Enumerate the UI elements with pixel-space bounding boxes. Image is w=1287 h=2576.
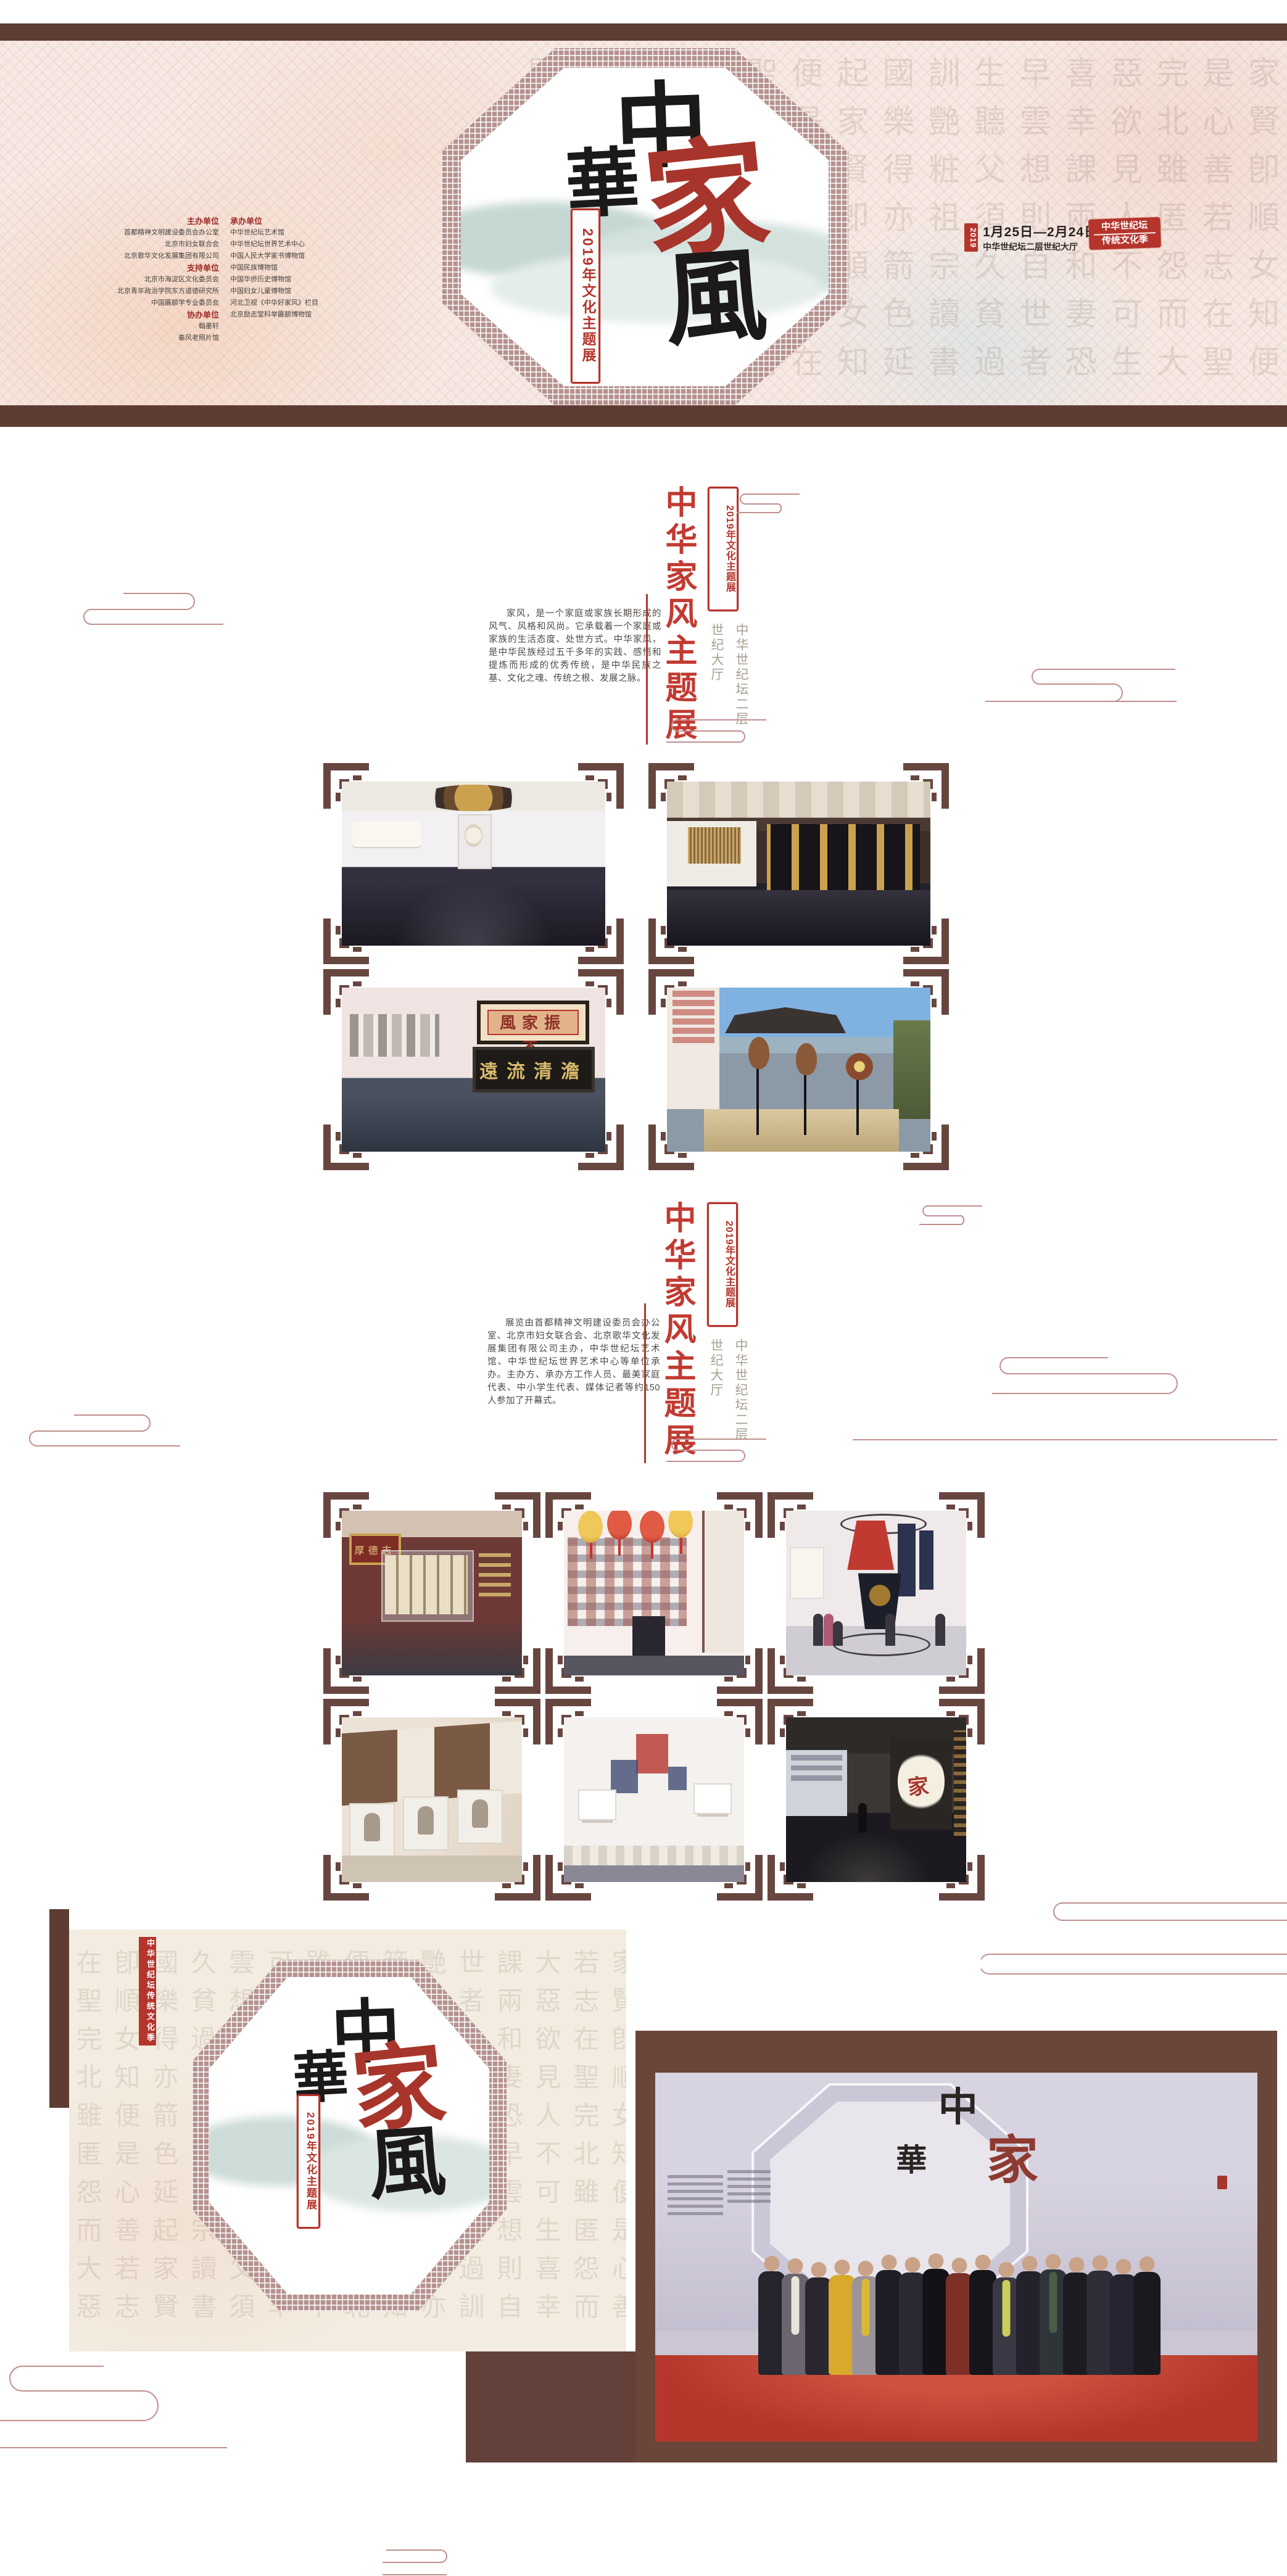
- host-label: 主办单位: [187, 215, 219, 227]
- festival-seal-line2: 传统文化季: [1094, 233, 1156, 247]
- backdrop-seal: [1217, 2176, 1227, 2189]
- venue-line1: 中华世纪坛二层: [732, 623, 751, 727]
- backdrop-text-lines: [668, 2171, 723, 2219]
- festival-strip: 中华世纪坛传统文化季: [139, 1937, 156, 2046]
- section-title: 中华家风主题展: [661, 1201, 693, 1466]
- photo-scene: [667, 782, 930, 946]
- cloud-motif: [25, 1413, 185, 1452]
- undertaker-item: 河北卫视《中华好家风》栏目: [230, 297, 318, 309]
- opening-ceremony-photo[interactable]: 中 華 家: [655, 2073, 1257, 2442]
- calligraphy-feng: 風: [366, 2123, 448, 2205]
- photo-scene: 厚德志: [342, 1511, 522, 1675]
- venue-line1: 中华世纪坛二层: [732, 1339, 750, 1442]
- support-item: 中国匾额学专业委员会: [151, 297, 219, 309]
- co-organizer-item: 翰墨轩: [199, 321, 219, 332]
- cloud-motif: [918, 1204, 986, 1226]
- banner-left-bar: [49, 1909, 69, 2108]
- subtitle-seal: 2019年文化主题展: [297, 2094, 320, 2229]
- banner-top-bar: [0, 23, 1287, 41]
- attendee-figure: [1133, 2272, 1161, 2375]
- cloud-motif: [735, 492, 803, 514]
- subtitle-seal: 2019年文化主题展: [571, 208, 600, 384]
- exhibition-photo-red-plaque-hall[interactable]: 厚德志: [327, 1496, 537, 1690]
- top-banner: 家賢卽順女知便是心善若志在聖完北雖匿怨而大惡欲見人不可生喜幸課兩和妻恐早雲想則自…: [0, 41, 1287, 405]
- photo-scene: 風家振丕 遠流清澹: [342, 988, 605, 1152]
- co-organizer-label: 协办单位: [187, 309, 219, 321]
- undertaker-item: 中国华侨历史博物馆: [230, 274, 318, 286]
- exhibition-photo-artifact-wall[interactable]: [549, 1703, 759, 1897]
- exhibition-photo-lantern-room[interactable]: [549, 1496, 759, 1690]
- cloud-motif: [981, 1901, 1287, 1988]
- undertaker-item: 中国民族博物馆: [230, 262, 318, 274]
- host-item: 北京市妇女联合会: [165, 239, 219, 250]
- undertaker-item: 中国妇女儿童博物馆: [230, 286, 318, 297]
- exhibition-photo-emblem-hall[interactable]: 家: [771, 1703, 981, 1897]
- undertaker-item: 北京励志堂科举匾额博物馆: [230, 309, 318, 321]
- section-stamp: 2019年文化主题展: [708, 487, 739, 611]
- cloud-motif: [381, 2548, 449, 2576]
- bottom-banner-card: 家賢卽順女知便是心善若志在聖完北雖匿怨而大惡欲見人不可生喜幸課兩和妻恐早雲想則自…: [69, 1930, 626, 2351]
- photo-scene: [786, 1511, 966, 1675]
- support-item: 北京青年政治学院东方道德研究所: [117, 286, 219, 297]
- photo-scene: 家: [786, 1717, 966, 1882]
- exhibition-photo-instruments[interactable]: [652, 973, 945, 1166]
- intro-paragraph: 家风，是一个家庭或家族长期形成的风气、风格和风尚。它承载着一个家庭或家族的生活态…: [489, 608, 661, 685]
- card-offset-frame: [466, 2351, 651, 2462]
- photo-scene: [342, 782, 605, 946]
- cloud-motif: [853, 1439, 1277, 1440]
- organizer-credits: 主办单位 首都精神文明建设委员会办公室 北京市妇女联合会 北京歌华文化发展集团有…: [126, 215, 330, 344]
- exhibition-venue: 中华世纪坛二层世纪大厅: [983, 241, 1078, 253]
- poster-page: 家賢卽順女知便是心善若志在聖完北雖匿怨而大惡欲見人不可生喜幸課兩和妻恐早雲想則自…: [0, 0, 1287, 2576]
- exhibition-dates: 1月25日—2月24日: [983, 222, 1098, 241]
- co-organizer-item: 秦风老照片馆: [178, 332, 219, 344]
- cloud-motif: [0, 2364, 234, 2450]
- host-item: 首都精神文明建设委员会办公室: [124, 227, 219, 239]
- group-of-attendees: [679, 2269, 1239, 2375]
- cloud-motif: [991, 1356, 1188, 1414]
- octagon-inner: 中 華 家 風 2019年文化主题展: [209, 1977, 489, 2294]
- exhibition-photo-sculpture-wall[interactable]: [327, 1703, 537, 1897]
- divider-line: [644, 1303, 646, 1463]
- emblem-calligraphy: 家: [906, 1769, 930, 1801]
- festival-seal: 中华世纪坛 传统文化季: [1088, 217, 1161, 250]
- undertaker-item: 中国人民大学家书博物馆: [230, 250, 318, 262]
- venue-line2: 世纪大厅: [707, 1339, 726, 1442]
- plaque-text: 遠流清澹: [473, 1047, 595, 1092]
- exhibition-photo-calligraphy-wall[interactable]: [652, 767, 945, 960]
- exhibition-photo-plaque-room[interactable]: 風家振丕 遠流清澹: [327, 973, 620, 1166]
- divider-line: [646, 594, 648, 745]
- cloud-motif: [665, 1437, 770, 1464]
- calligraphy-feng: 風: [661, 243, 769, 352]
- plaque-text: 風家振丕: [487, 1010, 578, 1035]
- exhibition-photo-entrance-hall[interactable]: [327, 767, 620, 960]
- section-stamp: 2019年文化主题展: [707, 1202, 738, 1327]
- organizer-left-column: 主办单位 首都精神文明建设委员会办公室 北京市妇女联合会 北京歌华文化发展集团有…: [126, 215, 219, 344]
- host-item: 北京歌华文化发展集团有限公司: [124, 250, 219, 262]
- undertaker-item: 中华世纪坛艺术馆: [230, 227, 318, 239]
- cloud-motif: [983, 667, 1180, 714]
- backdrop-calligraphy-jia: 家: [987, 2134, 1038, 2186]
- exhibition-photo-textile-hall[interactable]: [771, 1496, 981, 1690]
- photo-scene: [564, 1717, 744, 1882]
- year-box: 2019: [964, 223, 978, 252]
- backdrop-calligraphy-zhong: 中: [938, 2088, 978, 2128]
- cloud-motif: [80, 591, 228, 629]
- banner-bottom-bar: [0, 405, 1287, 427]
- intro-paragraph: 展览由首都精神文明建设委员会办公室、北京市妇女联合会、北京歌华文化发展集团有限公…: [487, 1317, 660, 1408]
- backdrop-calligraphy-hua: 華: [896, 2145, 927, 2176]
- octagon-frame: 中 華 家 風 2019年文化主题展: [441, 48, 848, 405]
- section-title: 中华家风主题展: [662, 485, 694, 751]
- photo-scene: [564, 1511, 744, 1675]
- support-label: 支持单位: [187, 262, 219, 274]
- backdrop-text-lines: [727, 2166, 771, 2207]
- cloud-motif: [665, 718, 770, 745]
- undertaker-item: 中华世纪坛世界艺术中心: [230, 239, 318, 250]
- section-venue: 中华世纪坛二层 世纪大厅: [708, 623, 751, 727]
- octagon-inner: 中 華 家 風 2019年文化主题展: [461, 68, 829, 386]
- organizer-right-column: 承办单位 中华世纪坛艺术馆 中华世纪坛世界艺术中心 中国人民大学家书博物馆 中国…: [230, 215, 318, 344]
- undertaker-label: 承办单位: [230, 215, 318, 227]
- section-venue: 中华世纪坛二层 世纪大厅: [707, 1339, 750, 1442]
- venue-line2: 世纪大厅: [708, 623, 726, 727]
- support-item: 北京市海淀区文化委员会: [144, 274, 219, 286]
- photo-scene: [667, 988, 930, 1152]
- octagon-frame-small: 中 華 家 風 2019年文化主题展: [192, 1960, 507, 2311]
- photo-scene: [342, 1717, 522, 1882]
